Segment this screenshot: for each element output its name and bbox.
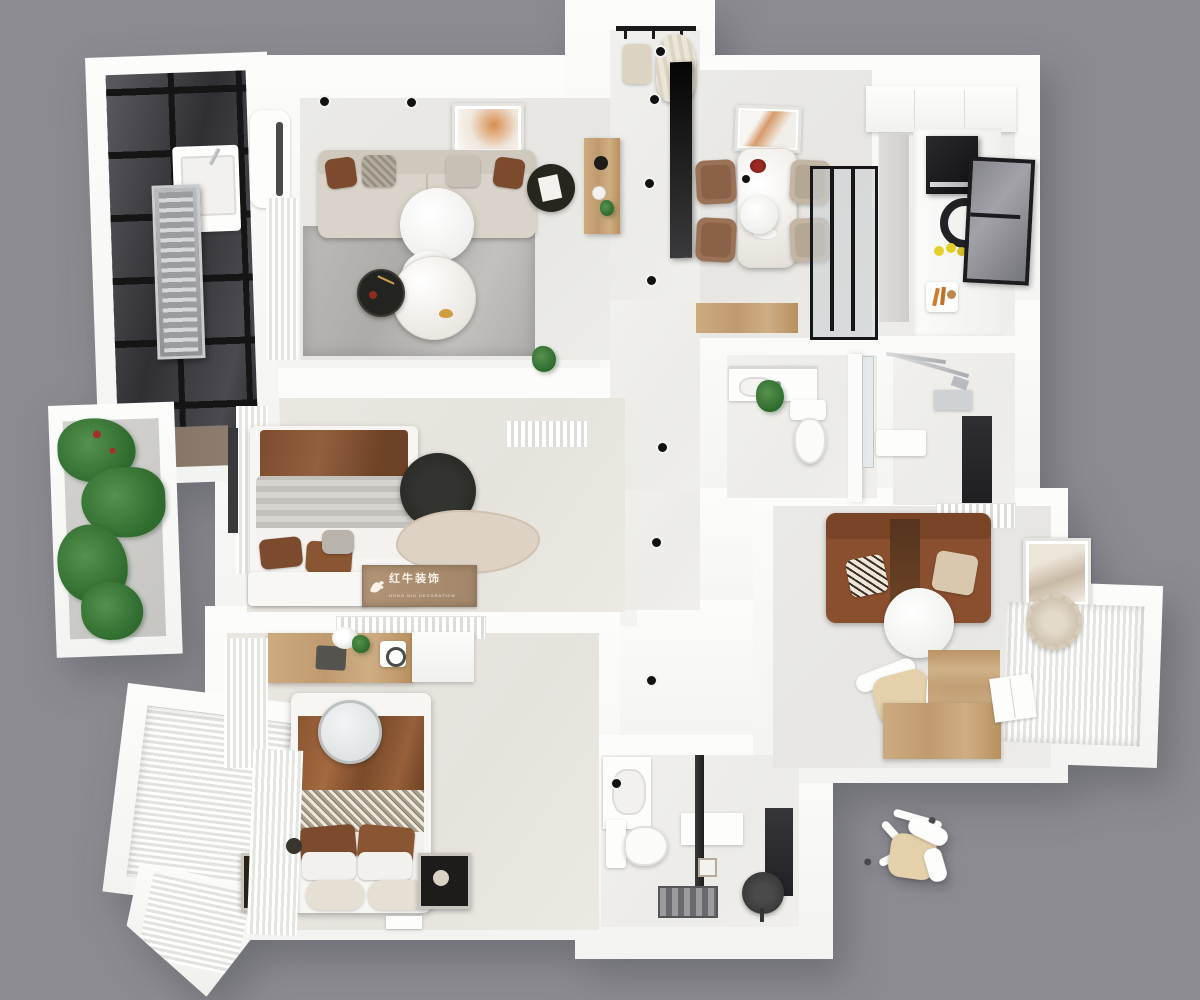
tv-panel xyxy=(670,62,692,259)
chair-wheel-1 xyxy=(864,858,872,866)
lemon-2 xyxy=(946,243,956,253)
coat-hook-1 xyxy=(624,31,627,39)
master-bedside-lamp xyxy=(286,838,302,854)
bath1-toilet xyxy=(790,400,826,462)
kitchen-window xyxy=(963,156,1036,285)
study-book-spine xyxy=(1009,678,1016,718)
kitchen-upper-cabinets xyxy=(866,86,1016,132)
carrot-2 xyxy=(940,287,946,305)
side-table-magazine xyxy=(538,174,563,202)
partition-frame-bar-2 xyxy=(851,169,855,331)
bedroom2-window-slit xyxy=(228,428,238,533)
study-book xyxy=(989,673,1037,722)
drying-rack xyxy=(151,184,205,360)
coffee-table xyxy=(392,256,476,340)
art-right-disc xyxy=(433,870,449,886)
master-art-right xyxy=(418,853,471,909)
dining-mirror-image xyxy=(739,110,796,148)
bath1-plant xyxy=(756,380,784,412)
entry-console xyxy=(584,138,620,234)
onion xyxy=(947,290,956,299)
master-pillow-white-2 xyxy=(358,852,412,880)
stove-ring xyxy=(386,647,406,667)
carrot-1 xyxy=(932,288,940,306)
drying-rack-bars xyxy=(159,191,199,352)
bed2-pillow-gray xyxy=(322,530,354,554)
tray-gold-spoon xyxy=(377,275,394,284)
ac-vent-slot xyxy=(276,122,283,196)
bath2-wall-outlet xyxy=(698,858,717,877)
floor-ac-unit xyxy=(250,110,290,208)
master-desk-plant xyxy=(352,635,370,653)
ceiling-light-dot xyxy=(650,536,663,549)
bed2-pillow-brown-1 xyxy=(259,536,304,570)
shower-shelf xyxy=(934,390,972,410)
dining-chair-2 xyxy=(695,217,737,263)
bath2-toilet xyxy=(606,820,664,868)
coffee-table-croissant xyxy=(439,309,453,318)
ceiling-light-dot xyxy=(643,177,656,190)
tray-side-table xyxy=(357,269,405,317)
ceiling-light-dot xyxy=(645,674,658,687)
living-wall-art-image xyxy=(458,109,518,149)
pendant-lamp-large xyxy=(400,188,474,262)
utility-window xyxy=(962,416,992,514)
master-floor-mat xyxy=(386,916,422,929)
master-bedside-cabinet xyxy=(412,632,474,682)
console-plant xyxy=(600,200,614,216)
master-bed-mirror xyxy=(318,700,382,764)
brand-watermark-subtext: HONG NIU DECORATION xyxy=(389,594,471,598)
cutting-board xyxy=(926,282,958,312)
dining-chair-2-seat xyxy=(700,222,732,258)
partition-frame-bar-1 xyxy=(830,169,834,331)
bath2-black-pipe xyxy=(695,755,704,900)
dining-wall-mirror xyxy=(734,105,802,153)
master-desk-laptop xyxy=(315,645,346,671)
bed2-blanket-knit xyxy=(256,476,412,534)
bath2-toilet-tank xyxy=(606,820,626,868)
bed2-headboard xyxy=(248,572,368,606)
shower-partition-wall xyxy=(848,354,862,502)
toilet-tank xyxy=(790,400,826,420)
ceiling-light-dot xyxy=(648,93,661,106)
master-bench-cushion-1 xyxy=(306,880,364,910)
cabinet-seam-2 xyxy=(964,90,965,128)
ceiling-light-dot xyxy=(645,274,658,287)
lemon-1 xyxy=(934,246,944,256)
bull-logo-icon xyxy=(368,577,386,595)
study-desk xyxy=(883,703,1001,759)
master-window-tail-blinds xyxy=(137,873,252,976)
cabinet-seam-1 xyxy=(914,90,915,128)
kitchen-tall-cabinet xyxy=(879,134,909,322)
dining-candle-black xyxy=(742,175,750,183)
ceiling-light-dot xyxy=(610,777,623,790)
bath2-storage-unit xyxy=(658,886,718,918)
tray-fruit xyxy=(369,291,377,299)
brand-watermark-sign: 红牛装饰 HONG NIU DECORATION xyxy=(362,565,477,607)
living-wall-art xyxy=(452,103,524,155)
ceiling-light-dot xyxy=(656,441,669,454)
ceiling-light-dot xyxy=(654,45,667,58)
hanging-bag xyxy=(623,44,651,84)
kitchen-glass-partition xyxy=(810,166,878,340)
ceiling-light-dot xyxy=(405,96,418,109)
study-pillow-pattern xyxy=(844,553,889,598)
sofa-pillow-brown-right xyxy=(492,156,526,190)
console-vase-black xyxy=(594,156,608,170)
plant-balcony xyxy=(48,402,183,658)
sofa-side-table xyxy=(527,164,575,212)
floor-corridor-2 xyxy=(612,490,700,610)
master-pillow-white-1 xyxy=(302,852,356,880)
dining-pendant-lamp xyxy=(740,196,778,234)
dining-threshold xyxy=(696,303,798,333)
bath2-sink xyxy=(612,769,646,815)
study-pillow-beige xyxy=(931,550,979,597)
master-desk-stove xyxy=(380,641,406,667)
dining-chair-1 xyxy=(695,159,737,205)
dining-flowers-red xyxy=(750,159,766,173)
master-bed xyxy=(291,693,431,913)
toilet-bowl xyxy=(794,418,826,464)
fallen-office-chair xyxy=(861,807,955,898)
coat-rail xyxy=(616,26,696,31)
bath2-fan-stand xyxy=(760,908,764,922)
ceiling-light-dot xyxy=(318,95,331,108)
utility-cabinet xyxy=(876,430,926,456)
console-vase-white xyxy=(592,186,606,200)
sofa-pillow-brown-left xyxy=(324,156,358,190)
floor-plant-sprig xyxy=(532,346,556,372)
coat-hook-2 xyxy=(652,31,655,39)
bath2-toilet-bowl xyxy=(624,826,668,866)
living-curtain xyxy=(266,198,298,360)
bedroom2-radiator xyxy=(506,420,588,448)
master-desk xyxy=(268,633,413,683)
apartment-plan: 红牛装饰 HONG NIU DECORATION xyxy=(0,0,1200,1000)
pampas-pompom xyxy=(1026,594,1082,650)
kitchen-window-bar xyxy=(970,212,1020,219)
sofa-pillow-gray xyxy=(362,155,396,187)
shower-glass xyxy=(862,356,874,468)
sofa-pillow-beige xyxy=(446,155,480,187)
bath2-wall-board xyxy=(681,813,743,845)
floorplan-render-stage: 红牛装饰 HONG NIU DECORATION xyxy=(0,0,1200,1000)
brand-watermark-text: 红牛装饰 xyxy=(389,574,471,586)
bath2-vanity xyxy=(603,757,651,829)
dining-chair-1-seat xyxy=(700,164,732,200)
